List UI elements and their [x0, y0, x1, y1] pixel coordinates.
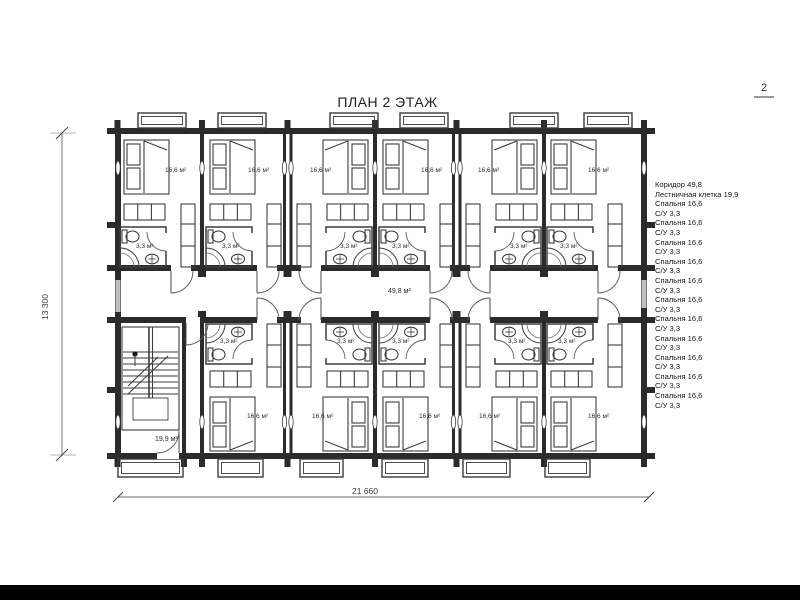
room-schedule-entry: Лестничная клетка 19,9: [655, 190, 800, 200]
room-schedule-entry: Спальня 16,6: [655, 391, 800, 401]
room-schedule-entry: С/У 3,3: [655, 266, 800, 276]
bedroom-area-label: 16,6 м²: [421, 167, 442, 174]
log-end-stubs: [107, 120, 655, 467]
bedroom-area-label: 16,6 м²: [588, 167, 609, 174]
bathroom-area-label: 3,3 м²: [340, 243, 357, 250]
corridor-walls: [115, 265, 647, 323]
dimension-height-label: 13 300: [40, 294, 50, 320]
room-schedule-entry: Спальня 16,6: [655, 218, 800, 228]
window-bays-bottom: [118, 459, 590, 477]
screenshot-bottom-bar: [0, 585, 800, 600]
bathroom-area-label: 3,3 м²: [136, 243, 153, 250]
bedroom-area-label: 16,6 м²: [310, 167, 331, 174]
bedroom-area-label: 16,6 м²: [247, 413, 268, 420]
room-schedule-entry: Спальня 16,6: [655, 353, 800, 363]
room-schedule-entry: С/У 3,3: [655, 247, 800, 257]
bedroom-area-label: 16,6 м²: [312, 413, 333, 420]
room-schedule-entry: Коридор 49,8: [655, 180, 800, 190]
bathroom-area-label: 3,3 м²: [392, 243, 409, 250]
room-schedule-entry: С/У 3,3: [655, 381, 800, 391]
room-schedule-entry: С/У 3,3: [655, 343, 800, 353]
room-schedule-entry: С/У 3,3: [655, 228, 800, 238]
room-schedule-entry: Спальня 16,6: [655, 276, 800, 286]
room-schedule-entry: Спальня 16,6: [655, 295, 800, 305]
bathroom-area-label: 3,3 м²: [560, 243, 577, 250]
bathroom-area-label: 3,3 м²: [508, 338, 525, 345]
bathroom-area-label: 3,3 м²: [510, 243, 527, 250]
side-wall-windows: [116, 280, 647, 312]
room-schedule-entry: С/У 3,3: [655, 305, 800, 315]
room-schedule-entry: С/У 3,3: [655, 286, 800, 296]
plan-title: ПЛАН 2 ЭТАЖ: [300, 94, 475, 110]
room-schedule-entry: С/У 3,3: [655, 209, 800, 219]
room-schedule-entry: Спальня 16,6: [655, 199, 800, 209]
drawing-sheet: ПЛАН 2 ЭТАЖ 2 Коридор 49,8 Лестничная кл…: [0, 0, 800, 600]
bedroom-area-label: 16,6 м²: [165, 167, 186, 174]
room-schedule-entry: Спальня 16,6: [655, 257, 800, 267]
sheet-page-number: 2: [754, 82, 774, 98]
window-bays-top: [138, 113, 632, 128]
bathroom-area-label: 3,3 м²: [222, 243, 239, 250]
bedroom-area-label: 16,6 м²: [419, 413, 440, 420]
bedroom-area-label: 16,6 м²: [478, 167, 499, 174]
room-schedule-entry: Спальня 16,6: [655, 314, 800, 324]
staircase-area-label: 19,9 м²: [155, 436, 178, 443]
bathroom-area-label: 3,3 м²: [392, 338, 409, 345]
bedroom-area-label: 16,6 м²: [479, 413, 500, 420]
dimension-width-label: 21 660: [352, 486, 378, 496]
room-schedule-entry: С/У 3,3: [655, 362, 800, 372]
room-schedule-entry: С/У 3,3: [655, 401, 800, 411]
bedroom-area-label: 16,6 м²: [588, 413, 609, 420]
bathroom-area-label: 3,3 м²: [220, 338, 237, 345]
room-schedule-entry: С/У 3,3: [655, 324, 800, 334]
corridor-area-label: 49,8 м²: [388, 288, 411, 295]
partition-walls: [182, 134, 546, 453]
log-joint-marks: [116, 161, 646, 429]
room-schedule-entry: Спальня 16,6: [655, 334, 800, 344]
room-schedule-entry: Спальня 16,6: [655, 238, 800, 248]
bathroom-area-label: 3,3 м²: [558, 338, 575, 345]
bedroom-area-label: 16,6 м²: [248, 167, 269, 174]
room-schedule-entry: Спальня 16,6: [655, 372, 800, 382]
room-schedule: Коридор 49,8 Лестничная клетка 19,9 Спал…: [655, 180, 800, 410]
bathroom-area-label: 3,3 м²: [337, 338, 354, 345]
